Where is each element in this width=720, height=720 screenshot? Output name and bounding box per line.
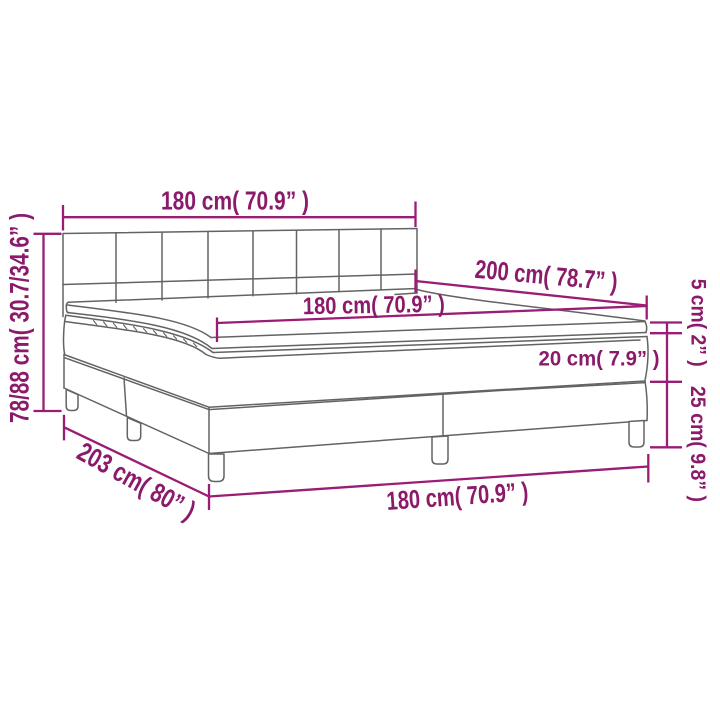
svg-text:180 cm( 70.9” ): 180 cm( 70.9” ) [303, 291, 445, 320]
svg-text:25 cm( 9.8” ): 25 cm( 9.8” ) [686, 386, 709, 502]
svg-text:5 cm( 2” ): 5 cm( 2” ) [687, 279, 710, 367]
svg-text:20 cm( 7.9” ): 20 cm( 7.9” ) [539, 347, 660, 370]
svg-text:78/88 cm( 30.7/34.6” ): 78/88 cm( 30.7/34.6” ) [4, 213, 34, 423]
svg-text:180 cm( 70.9” ): 180 cm( 70.9” ) [161, 186, 309, 216]
